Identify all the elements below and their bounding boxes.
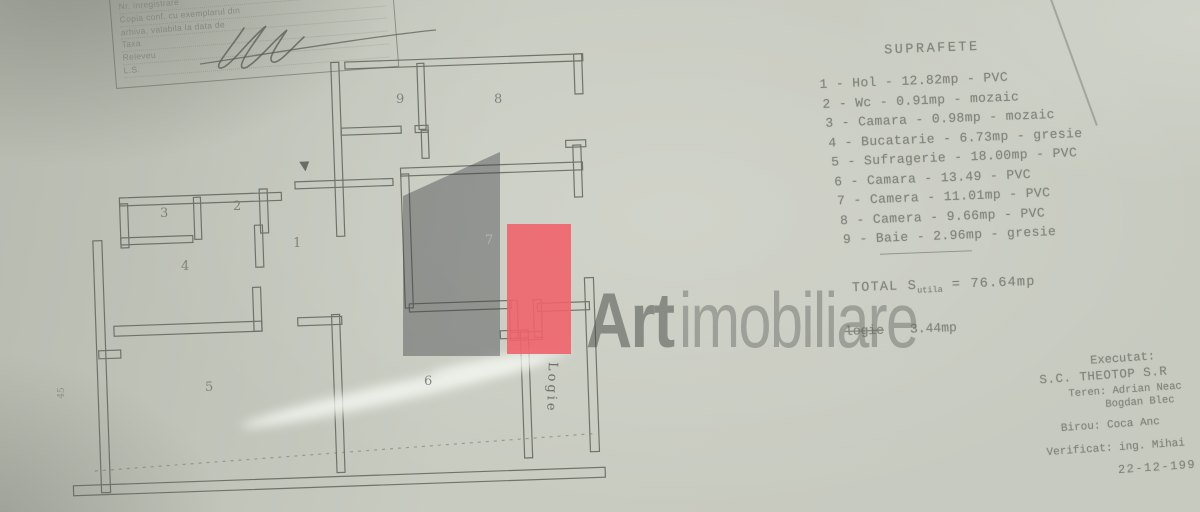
- art-imobiliare-logo: [0, 0, 1200, 512]
- room-label-3: 3: [160, 206, 168, 221]
- room-label-1: 1: [293, 236, 301, 251]
- dimension-mark: 45: [57, 387, 67, 399]
- room-label-7: 7: [485, 233, 493, 248]
- room-label-2: 2: [233, 199, 241, 214]
- logia-label: Logie: [543, 362, 560, 414]
- room-label-8: 8: [494, 92, 502, 107]
- room-label-4: 4: [181, 259, 189, 274]
- room-label-5: 5: [205, 380, 213, 395]
- brand-word-imobiliare: imobiliare: [679, 281, 917, 359]
- room-label-9: 9: [396, 92, 404, 107]
- room-label-6: 6: [424, 374, 432, 389]
- scanned-floorplan-page: Nr. inregistrare Copia conf. cu exemplar…: [0, 0, 1200, 512]
- brand-word-art: Art: [586, 281, 673, 359]
